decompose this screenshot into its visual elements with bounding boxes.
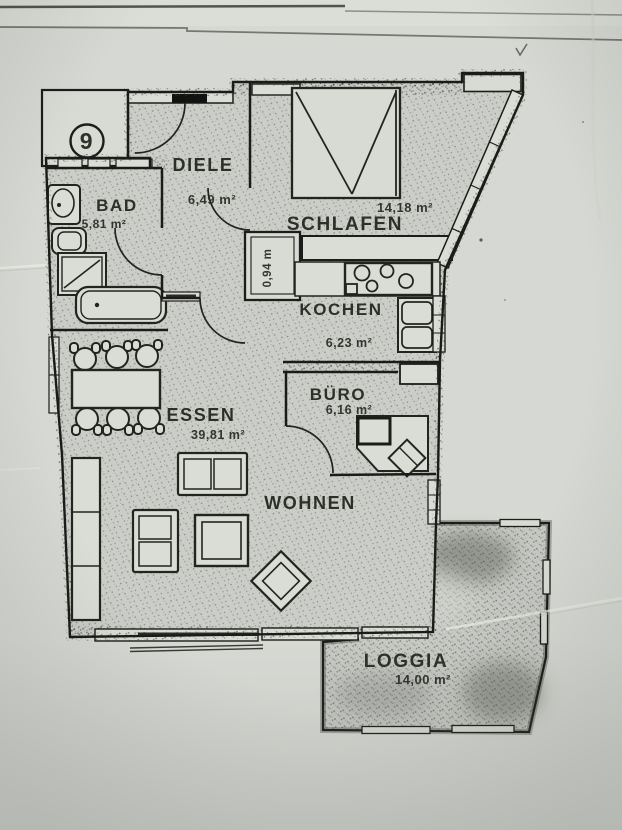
floorplan-scan: 9 0,94 m [0, 0, 622, 830]
floorplan-svg: 9 0,94 m [0, 0, 622, 830]
bottom-shading [0, 640, 622, 830]
